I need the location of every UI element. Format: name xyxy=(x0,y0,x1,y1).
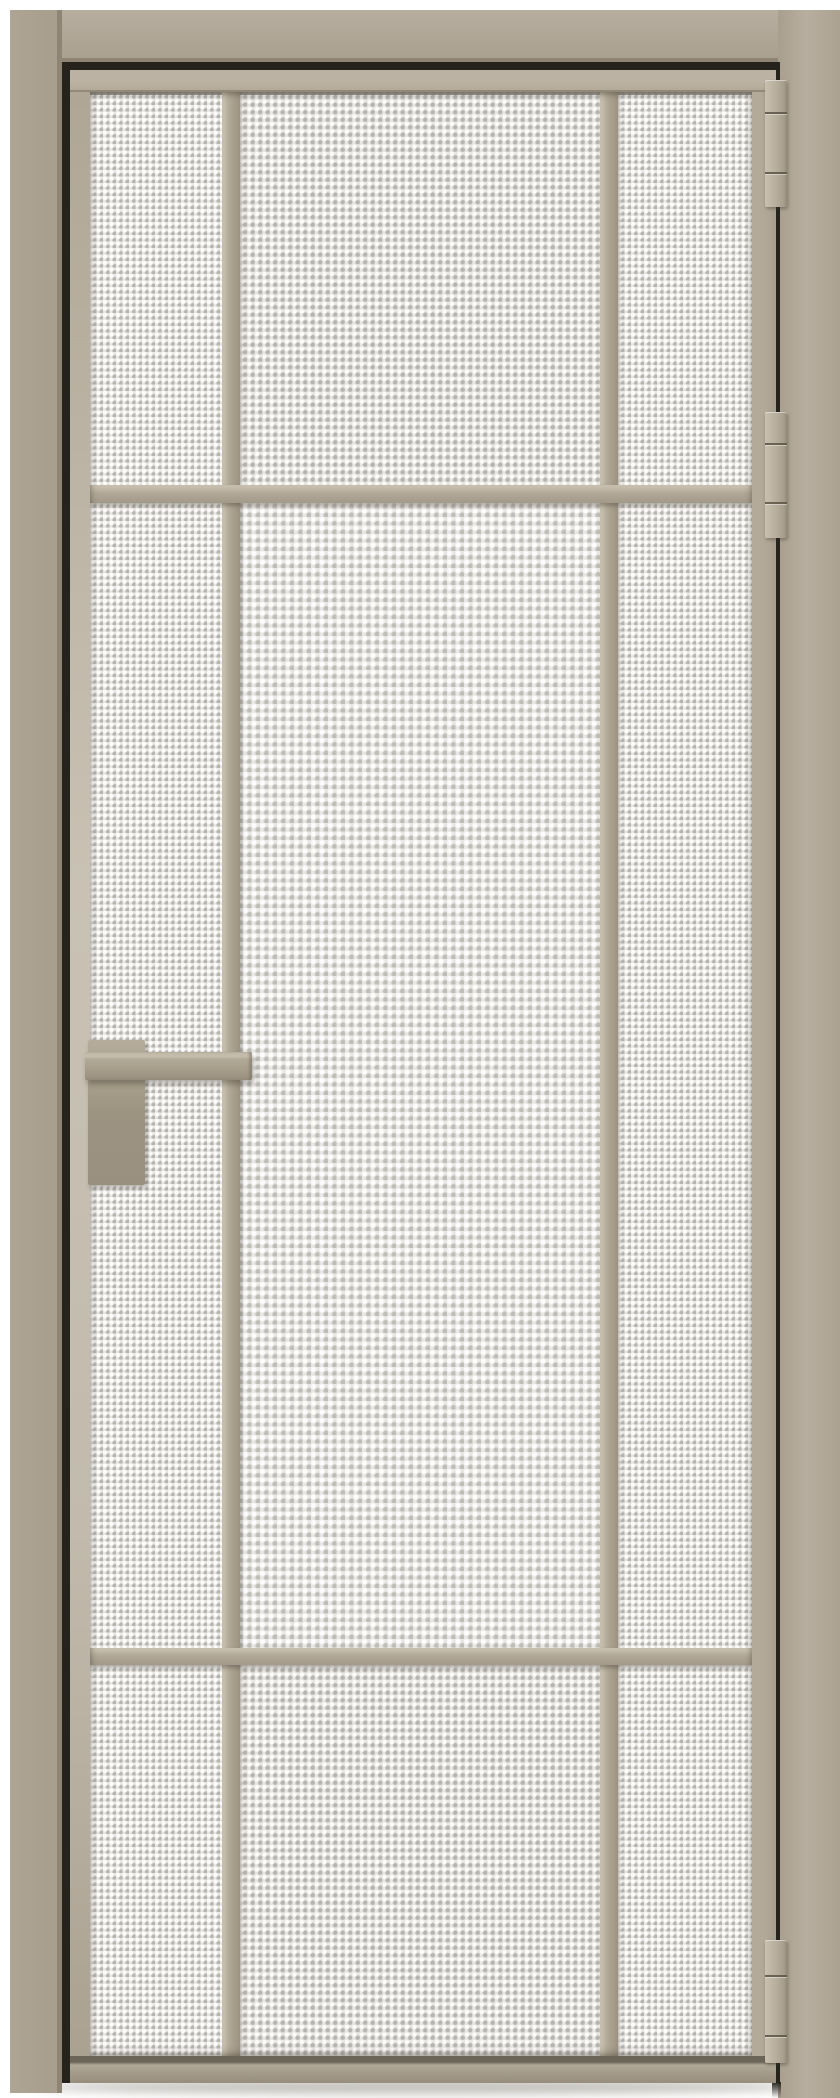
glass-column-right xyxy=(618,92,752,2056)
hinge-seam xyxy=(765,112,787,114)
door-product-photo xyxy=(0,0,840,2098)
leaf-right-stile xyxy=(752,92,776,2083)
hinge-seam xyxy=(765,443,787,445)
vertical-muntin-right xyxy=(600,92,618,2056)
frame-left-casing xyxy=(10,10,62,2093)
hinge-top xyxy=(765,80,787,207)
hinge-seam xyxy=(765,502,787,504)
door-leaf xyxy=(70,70,776,2083)
horizontal-muntin-lower xyxy=(90,1648,752,1665)
hinge-seam xyxy=(765,1975,787,1977)
glass-top-shadow xyxy=(90,92,752,95)
hinge-middle xyxy=(765,412,787,538)
hinge-seam xyxy=(765,172,787,174)
hinge-seam xyxy=(765,2035,787,2037)
leaf-bottom-rail xyxy=(70,2056,776,2083)
glass-center-bottom-pane xyxy=(240,1665,600,2056)
handle-lever xyxy=(85,1052,252,1080)
frame-top-casing xyxy=(10,10,840,62)
hinge-bottom xyxy=(765,1940,787,2063)
leaf-left-stile xyxy=(70,92,90,2083)
reveal-bottom-sliver xyxy=(772,2082,781,2098)
leaf-top-rail xyxy=(70,70,776,92)
glass-center-top-pane xyxy=(240,92,600,485)
frame-right-casing xyxy=(778,10,840,2098)
horizontal-muntin-upper xyxy=(90,485,752,503)
